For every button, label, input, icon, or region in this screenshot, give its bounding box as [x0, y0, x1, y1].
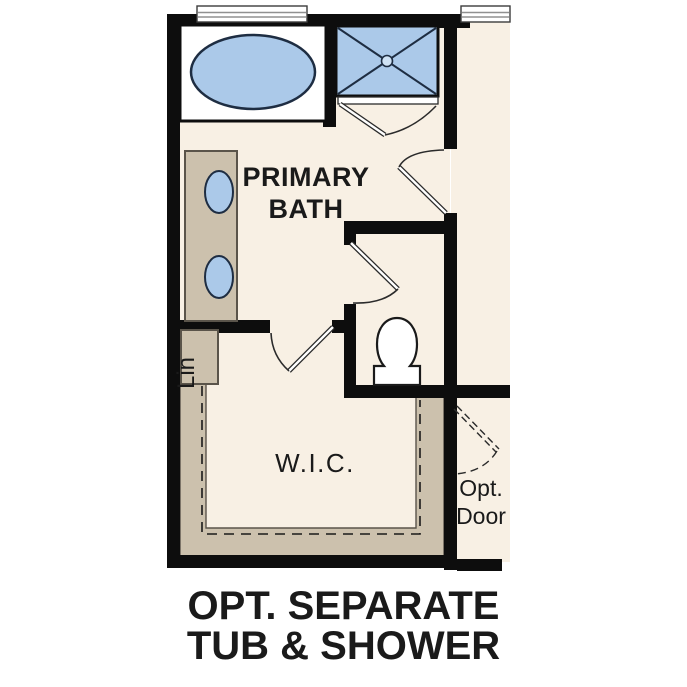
window-over-tub — [197, 6, 307, 22]
wall-left — [167, 14, 180, 568]
floor-plan-page: PRIMARY BATH Lin W.I.C. Opt. Door OPT. S… — [0, 0, 687, 687]
primary-bath-line1: PRIMARY — [226, 161, 386, 193]
toilet-shape — [374, 318, 420, 385]
window-top-right — [461, 6, 510, 22]
caption-line2: TUB & SHOWER — [0, 626, 687, 666]
shower-drain — [382, 56, 393, 67]
linen-label-text: Lin — [175, 357, 199, 389]
wall-toilet-room-bottom — [344, 385, 510, 398]
wall-toilet-room-left — [344, 304, 356, 397]
caption-line1: OPT. SEPARATE — [0, 586, 687, 626]
sink-bottom — [205, 256, 233, 298]
opt-door-line1: Opt. — [441, 474, 521, 502]
wall-bottom — [167, 555, 457, 568]
toilet — [374, 318, 420, 385]
label-optional-door: Opt. Door — [441, 474, 521, 530]
shower-threshold — [338, 97, 438, 104]
wall-right-upper — [444, 14, 457, 149]
wall-bath-wic-stub — [332, 320, 348, 333]
plan-caption: OPT. SEPARATE TUB & SHOWER — [0, 586, 687, 666]
garden-tub — [191, 35, 315, 109]
wic-label-text: W.I.C. — [245, 450, 385, 476]
opt-door-line2: Door — [441, 502, 521, 530]
room-label-primary-bath: PRIMARY BATH — [226, 161, 386, 225]
wall-bottom-right — [457, 559, 502, 571]
primary-bath-line2: BATH — [226, 193, 386, 225]
room-label-wic: W.I.C. — [245, 450, 385, 476]
